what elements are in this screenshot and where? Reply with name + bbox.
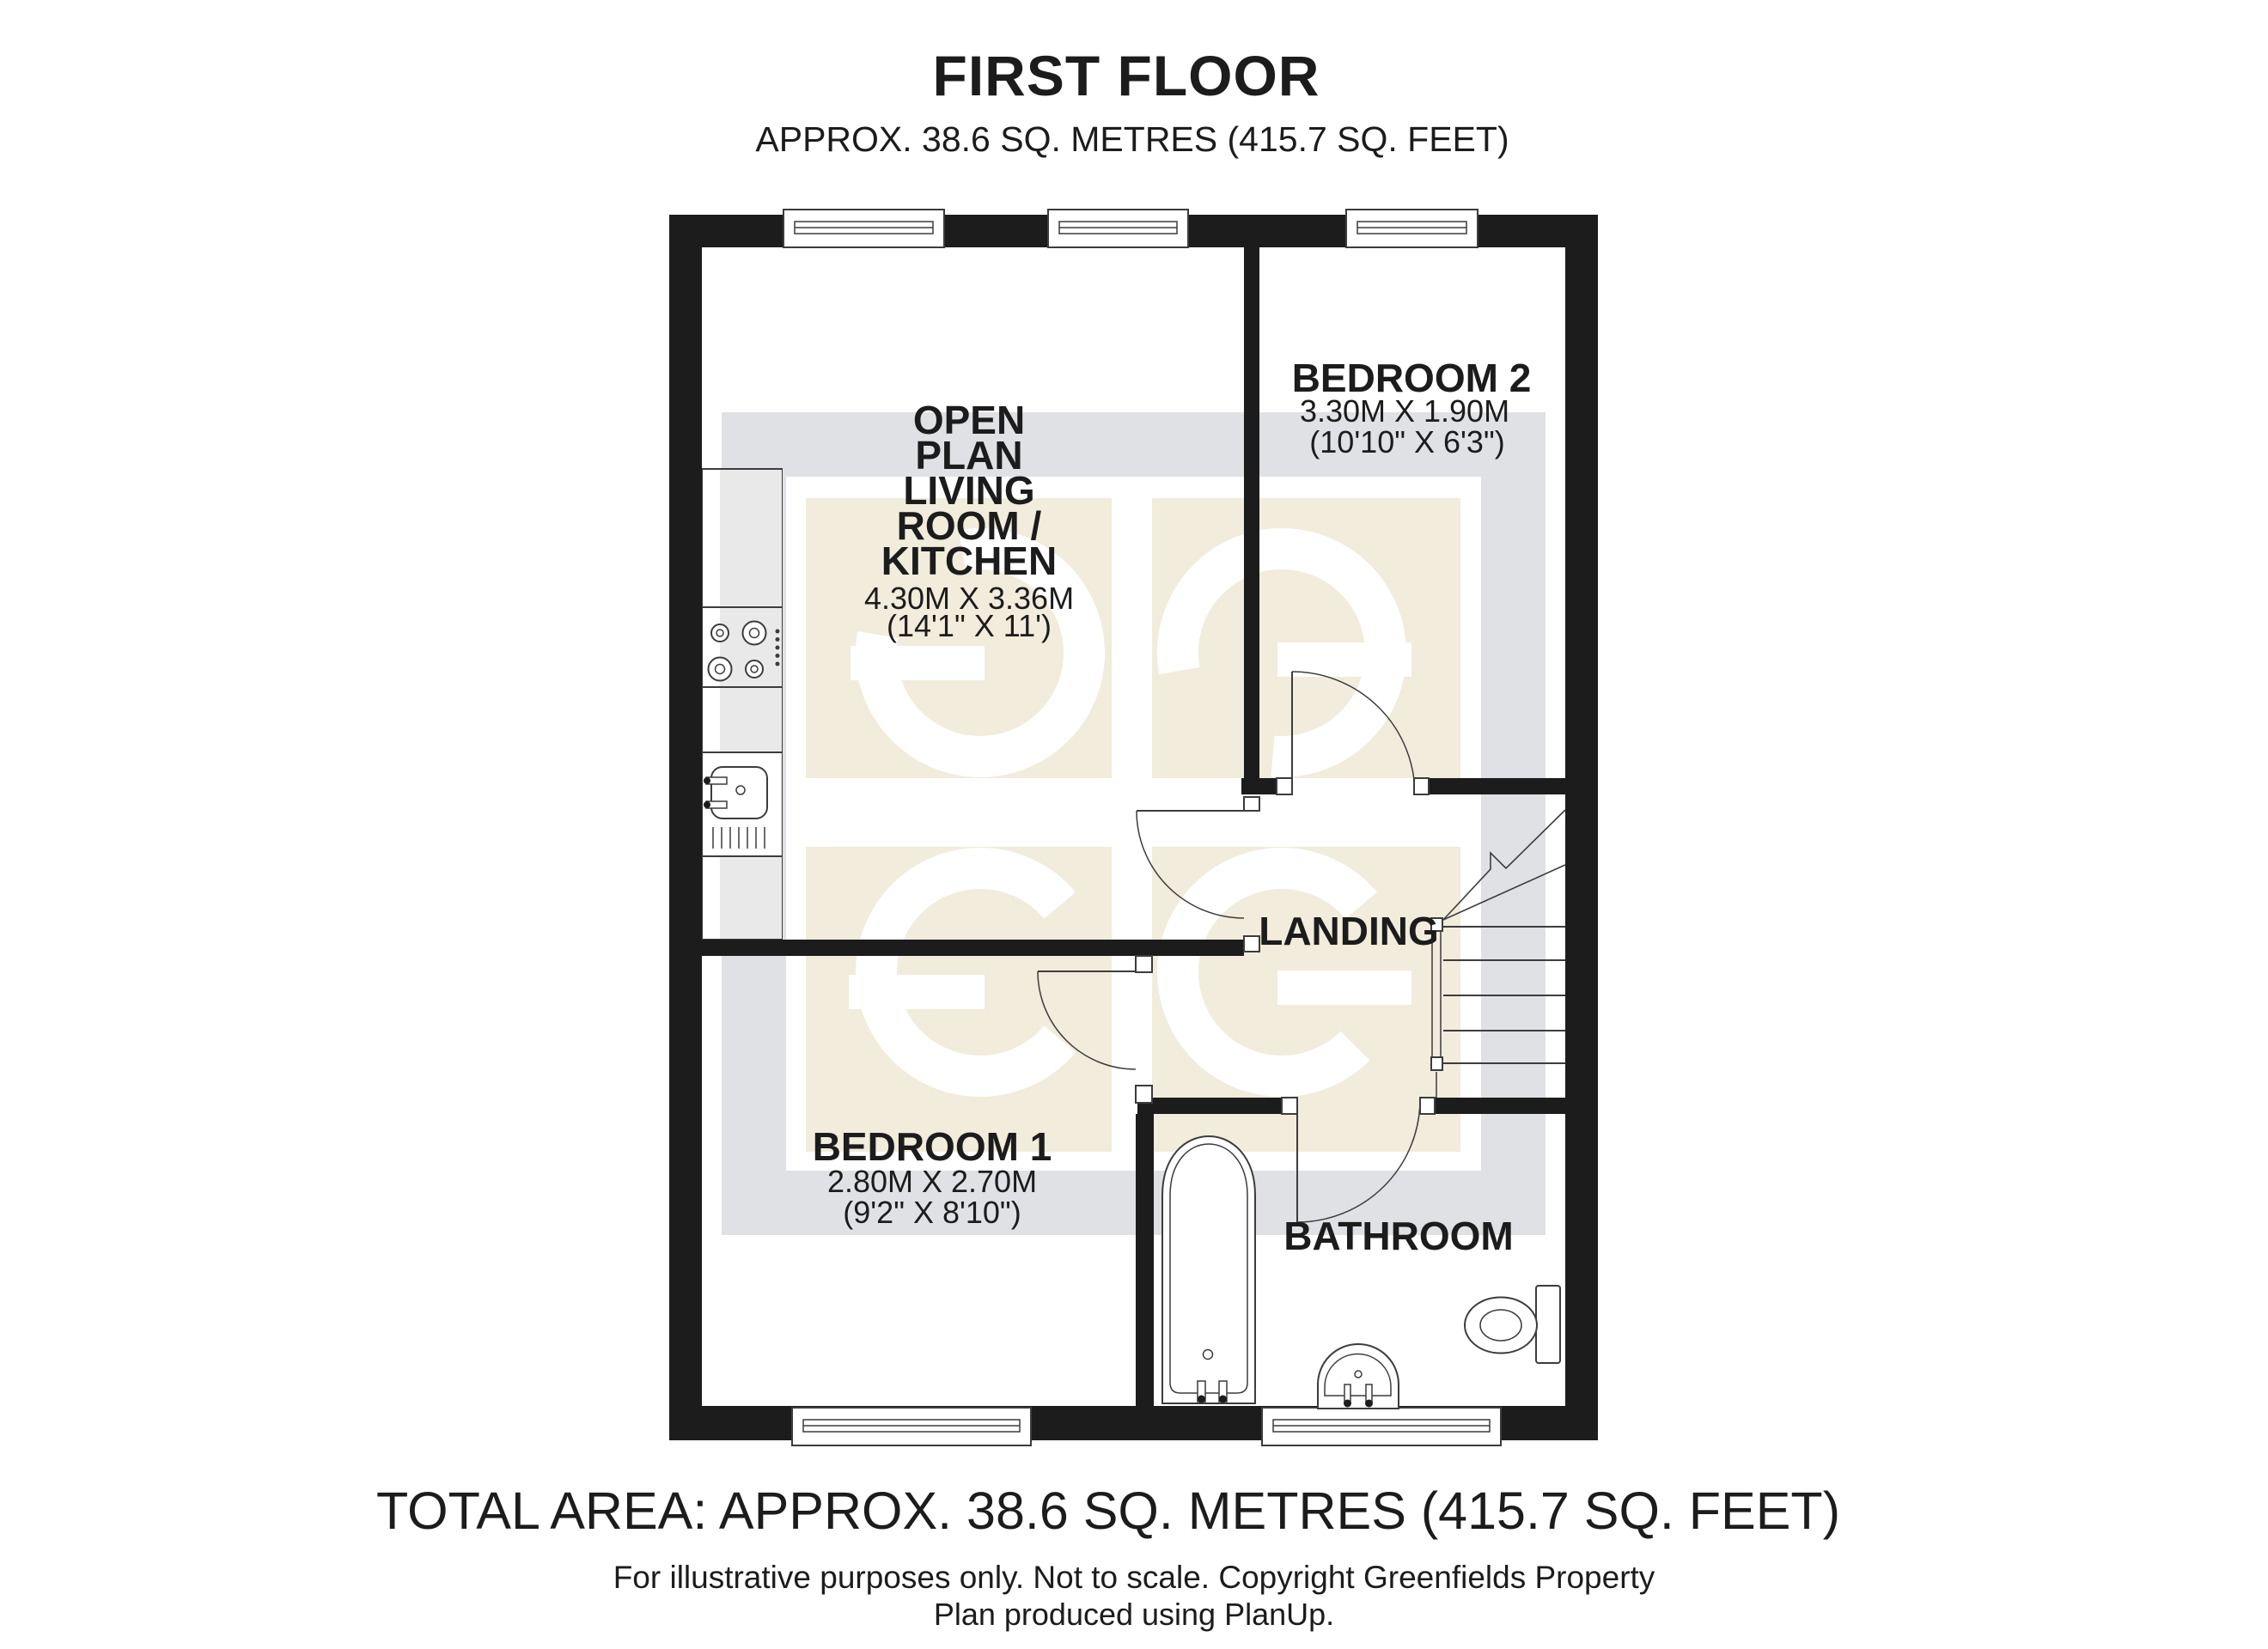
- svg-text:For illustrative purposes only: For illustrative purposes only. Not to s…: [613, 1560, 1655, 1595]
- svg-text:(14'1" X 11'): (14'1" X 11'): [887, 608, 1052, 643]
- svg-text:(9'2" X 8'10"): (9'2" X 8'10"): [843, 1195, 1021, 1230]
- svg-text:APPROX. 38.6 SQ. METRES (415.7: APPROX. 38.6 SQ. METRES (415.7 SQ. FEET): [755, 119, 1509, 159]
- svg-text:Plan produced using PlanUp.: Plan produced using PlanUp.: [934, 1597, 1334, 1632]
- svg-text:(10'10" X 6'3"): (10'10" X 6'3"): [1309, 424, 1504, 459]
- svg-text:BATHROOM: BATHROOM: [1283, 1214, 1513, 1258]
- svg-text:LANDING: LANDING: [1259, 909, 1439, 953]
- svg-text:3.30M X 1.90M: 3.30M X 1.90M: [1300, 393, 1509, 429]
- svg-text:2.80M X 2.70M: 2.80M X 2.70M: [827, 1164, 1037, 1199]
- svg-text:KITCHEN: KITCHEN: [881, 539, 1057, 583]
- svg-text:TOTAL AREA: APPROX. 38.6 SQ. M: TOTAL AREA: APPROX. 38.6 SQ. METRES (415…: [376, 1482, 1840, 1540]
- svg-text:BEDROOM 1: BEDROOM 1: [813, 1124, 1052, 1169]
- svg-text:FIRST FLOOR: FIRST FLOOR: [933, 44, 1320, 107]
